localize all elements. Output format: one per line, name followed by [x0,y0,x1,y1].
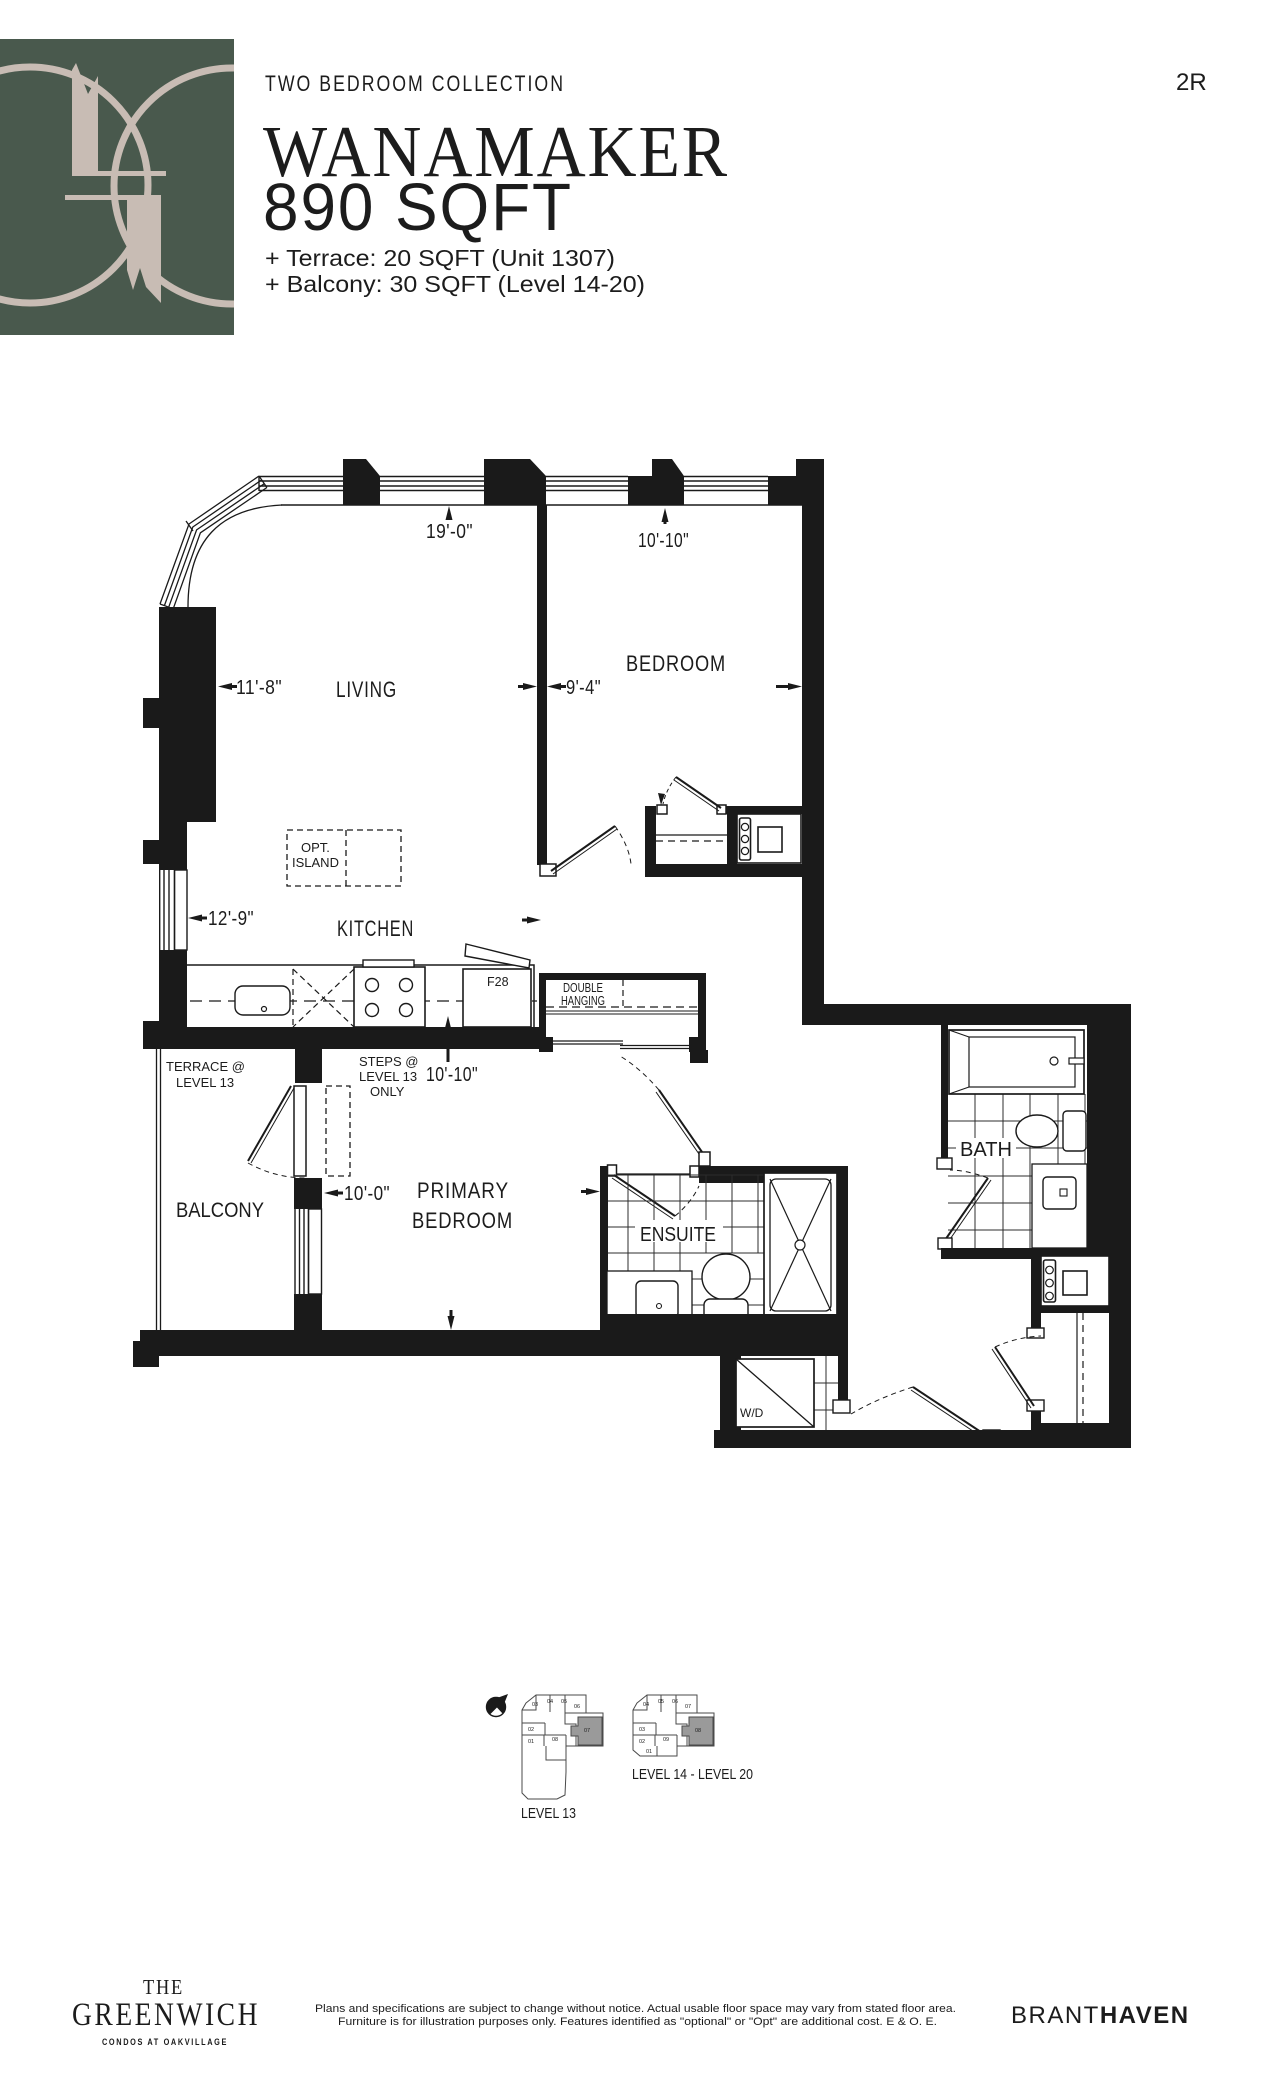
svg-text:TWO BEDROOM COLLECTION: TWO BEDROOM COLLECTION [265,71,565,96]
svg-text:PRIMARY: PRIMARY [417,1178,509,1203]
svg-text:BATH: BATH [960,1139,1012,1161]
svg-text:05: 05 [561,1699,567,1705]
svg-text:ENSUITE: ENSUITE [640,1224,716,1246]
svg-text:W/D: W/D [740,1406,764,1420]
svg-text:03: 03 [639,1727,645,1733]
svg-text:08: 08 [695,1728,701,1734]
svg-text:TERRACE @: TERRACE @ [166,1059,245,1074]
svg-text:9'-4": 9'-4" [566,677,601,699]
svg-text:BALCONY: BALCONY [176,1199,264,1222]
svg-text:12'-9": 12'-9" [208,908,254,930]
svg-text:BRANTHAVEN: BRANTHAVEN [1011,2002,1190,2029]
svg-text:09: 09 [663,1737,669,1743]
svg-text:LEVEL 14 - LEVEL 20: LEVEL 14 - LEVEL 20 [632,1766,753,1783]
svg-text:STEPS @: STEPS @ [359,1054,418,1069]
svg-text:04: 04 [547,1699,553,1705]
svg-text:DOUBLE: DOUBLE [563,981,603,995]
svg-text:F28: F28 [487,975,509,989]
svg-text:Plans and specifications are s: Plans and specifications are subject to … [315,2003,956,2015]
svg-text:06: 06 [574,1704,580,1710]
svg-text:2R: 2R [1176,69,1207,96]
svg-text:CONDOS AT OAKVILLAGE: CONDOS AT OAKVILLAGE [102,2037,228,2047]
svg-text:10'-10": 10'-10" [426,1064,478,1086]
svg-text:08: 08 [552,1737,558,1743]
svg-text:19'-0": 19'-0" [426,521,473,543]
svg-text:GREENWICH: GREENWICH [72,1997,260,2033]
svg-text:BEDROOM: BEDROOM [626,651,726,676]
svg-text:ONLY: ONLY [370,1084,405,1099]
svg-text:10'-0": 10'-0" [344,1183,390,1205]
svg-text:+ Terrace: 20 SQFT (Unit 1307): + Terrace: 20 SQFT (Unit 1307) [265,245,615,271]
svg-text:01: 01 [646,1749,652,1755]
svg-text:04: 04 [643,1702,649,1708]
svg-text:890 SQFT: 890 SQFT [263,170,573,245]
svg-text:LEVEL 13: LEVEL 13 [521,1805,576,1822]
svg-text:KITCHEN: KITCHEN [337,916,414,941]
svg-text:THE: THE [143,1975,184,1999]
svg-text:06: 06 [672,1699,678,1705]
svg-text:Furniture is for illustration: Furniture is for illustration purposes o… [338,2016,937,2028]
svg-text:+ Balcony: 30 SQFT (Level 14-2: + Balcony: 30 SQFT (Level 14-20) [265,271,645,297]
svg-text:ISLAND: ISLAND [292,855,339,870]
svg-text:OPT.: OPT. [301,840,330,855]
svg-text:01: 01 [528,1739,534,1745]
svg-text:07: 07 [685,1704,691,1710]
svg-text:BEDROOM: BEDROOM [412,1208,513,1233]
svg-text:07: 07 [584,1728,590,1734]
svg-text:05: 05 [658,1699,664,1705]
svg-text:11'-8": 11'-8" [236,677,282,699]
svg-text:LEVEL 13: LEVEL 13 [359,1069,417,1084]
svg-text:10'-10": 10'-10" [638,530,689,552]
svg-text:LIVING: LIVING [336,677,397,702]
svg-text:02: 02 [639,1739,645,1745]
svg-text:HANGING: HANGING [561,994,605,1008]
svg-text:03: 03 [532,1702,538,1708]
svg-text:LEVEL 13: LEVEL 13 [176,1075,234,1090]
svg-text:02: 02 [528,1727,534,1733]
